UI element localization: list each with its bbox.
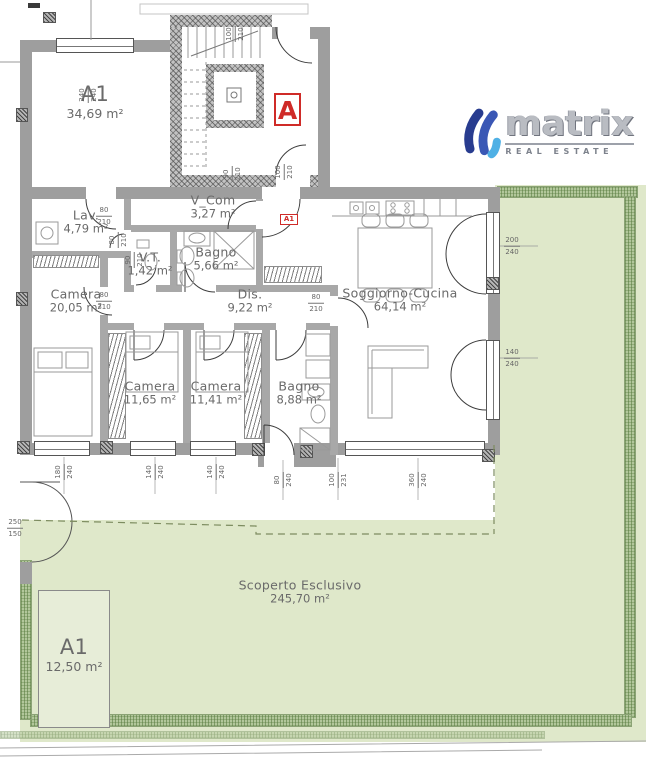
dimension-value: 231 — [340, 473, 349, 486]
room-area: 20,05 m² — [50, 302, 102, 315]
sofa — [368, 346, 428, 418]
dimension-value: 210 — [309, 305, 322, 314]
dimension-value: 250 — [8, 518, 21, 527]
dimension-value: 140 — [505, 348, 518, 357]
room-area: 9,22 m² — [227, 302, 272, 315]
room-area: 3,27 m² — [190, 208, 235, 221]
dimension-label: 80240 — [273, 472, 294, 488]
dimension-value — [118, 232, 119, 248]
bed-double — [34, 348, 92, 436]
logo-swoosh-icon — [462, 102, 501, 160]
dimension-label: 90210 — [222, 166, 243, 182]
room-label: Soggiorno-Cucina64,14 m² — [342, 287, 457, 314]
street-lines — [0, 741, 646, 756]
dimension-value — [155, 464, 156, 480]
room-area: 5,66 m² — [193, 260, 238, 273]
room-name: Camera — [124, 380, 176, 394]
room-area: 11,65 m² — [124, 394, 176, 407]
dimension-value: 210 — [286, 165, 295, 178]
dimension-value: 100 — [328, 473, 337, 486]
dimension-label: 90210 — [124, 252, 145, 268]
dimension-label: 180240 — [54, 464, 75, 480]
dimension-label: 140240 — [145, 464, 166, 480]
dimension-label: 100210 — [225, 26, 246, 42]
dimension-value: 240 — [157, 465, 166, 478]
dimension-label: 100210 — [274, 164, 295, 180]
room-name: Camera — [50, 288, 102, 302]
dimension-value — [134, 252, 135, 268]
dimension-value — [418, 472, 419, 488]
dimension-value: 100 — [225, 27, 234, 40]
room-label: Camera11,41 m² — [190, 380, 242, 407]
room-name: V_Com — [190, 194, 235, 208]
dimension-label: 360240 — [408, 472, 429, 488]
room-label: Camera20,05 m² — [50, 288, 102, 315]
dimension-value: 80 — [100, 206, 109, 215]
dimension-value: 180 — [54, 465, 63, 478]
dimension-value: 240 — [78, 88, 87, 101]
dimension-value: 80 — [108, 236, 117, 245]
dimension-value: 210 — [237, 27, 246, 40]
dimension-value — [504, 358, 520, 359]
dim-leader-lines — [64, 457, 418, 500]
room-name: Scoperto Esclusivo — [239, 579, 362, 593]
dimension-value — [284, 164, 285, 180]
logo-tagline-text: REAL ESTATE — [505, 143, 634, 156]
dimension-value — [88, 87, 89, 103]
stairs — [184, 27, 260, 170]
dimension-value: 240 — [505, 248, 518, 257]
room-name: Bagno — [276, 380, 321, 394]
dimension-value: 240 — [218, 465, 227, 478]
dimension-value: 210 — [136, 253, 145, 266]
logo-brand-text: matrix — [505, 107, 634, 141]
room-name: Soggiorno-Cucina — [342, 287, 457, 301]
room-name: Dis. — [227, 288, 272, 302]
dimension-value — [96, 216, 112, 217]
building-block-badge: A — [274, 93, 301, 126]
dimension-value — [235, 26, 236, 42]
floor-plan-canvas: A A1 matrix REAL ESTATE A134,69 m²Lav.4,… — [0, 0, 646, 764]
dimension-value: 210 — [234, 167, 243, 180]
room-label: A112,50 m² — [46, 636, 103, 674]
dimension-value — [64, 464, 65, 480]
dimension-label: 80210 — [308, 293, 324, 314]
unit-entry-badge: A1 — [280, 214, 298, 225]
room-label: Scoperto Esclusivo245,70 m² — [239, 579, 362, 606]
dimension-value — [283, 472, 284, 488]
room-name: A1 — [46, 636, 103, 660]
dimension-label: 200240 — [504, 236, 520, 257]
room-area: 64,14 m² — [342, 301, 457, 314]
dimension-value: 80 — [100, 291, 109, 300]
room-label: Bagno8,88 m² — [276, 380, 321, 407]
dimension-value: 240 — [420, 473, 429, 486]
dimension-value: 80 — [312, 293, 321, 302]
dimension-label: 100231 — [328, 472, 349, 488]
dimension-value: 360 — [408, 473, 417, 486]
room-label: Bagno5,66 m² — [193, 246, 238, 273]
room-area: 245,70 m² — [239, 593, 362, 606]
dimension-label: 140240 — [504, 348, 520, 369]
dimension-label: 80210 — [96, 291, 112, 312]
room-label: V_Com3,27 m² — [190, 194, 235, 221]
dimension-label: 80210 — [96, 206, 112, 227]
dimension-value: 200 — [505, 236, 518, 245]
furniture — [34, 199, 472, 450]
dimension-value: 90 — [124, 256, 133, 265]
dimension-value: 100 — [274, 165, 283, 178]
dimension-value: 210 — [120, 233, 129, 246]
dimension-value — [308, 303, 324, 304]
dimension-value: 240 — [505, 360, 518, 369]
room-name: Bagno — [193, 246, 238, 260]
dining-table — [358, 228, 432, 288]
room-area: 34,69 m² — [67, 107, 124, 121]
washing-machine — [36, 222, 58, 244]
room-area: 12,50 m² — [46, 660, 103, 674]
dimension-label: 80210 — [108, 232, 129, 248]
dimension-value: 240 — [66, 465, 75, 478]
room-area: 8,88 m² — [276, 394, 321, 407]
dimension-label: 140240 — [206, 464, 227, 480]
dimension-value — [96, 301, 112, 302]
dimension-value: 80 — [273, 476, 282, 485]
dimension-value: 240 — [285, 473, 294, 486]
dimension-value — [216, 464, 217, 480]
dimension-value — [232, 166, 233, 182]
dimension-value: 240 — [90, 88, 99, 101]
room-label: Dis.9,22 m² — [227, 288, 272, 315]
room-label: Camera11,65 m² — [124, 380, 176, 407]
matrix-logo: matrix REAL ESTATE — [462, 100, 634, 162]
dimension-value: 90 — [222, 170, 231, 179]
dimension-value: 140 — [206, 465, 215, 478]
dimension-value — [7, 528, 23, 529]
dimension-label: 250150 — [7, 518, 23, 539]
property-boundary-dashed — [22, 445, 494, 534]
elevator-symbol — [227, 88, 241, 102]
dimension-value — [338, 472, 339, 488]
dimension-value: 210 — [97, 303, 110, 312]
dimension-value: 210 — [97, 218, 110, 227]
dimension-value: 150 — [8, 530, 21, 539]
room-name: Camera — [190, 380, 242, 394]
dimension-value — [504, 246, 520, 247]
dimension-label: 240240 — [78, 87, 99, 103]
dimension-value: 140 — [145, 465, 154, 478]
room-area: 11,41 m² — [190, 394, 242, 407]
